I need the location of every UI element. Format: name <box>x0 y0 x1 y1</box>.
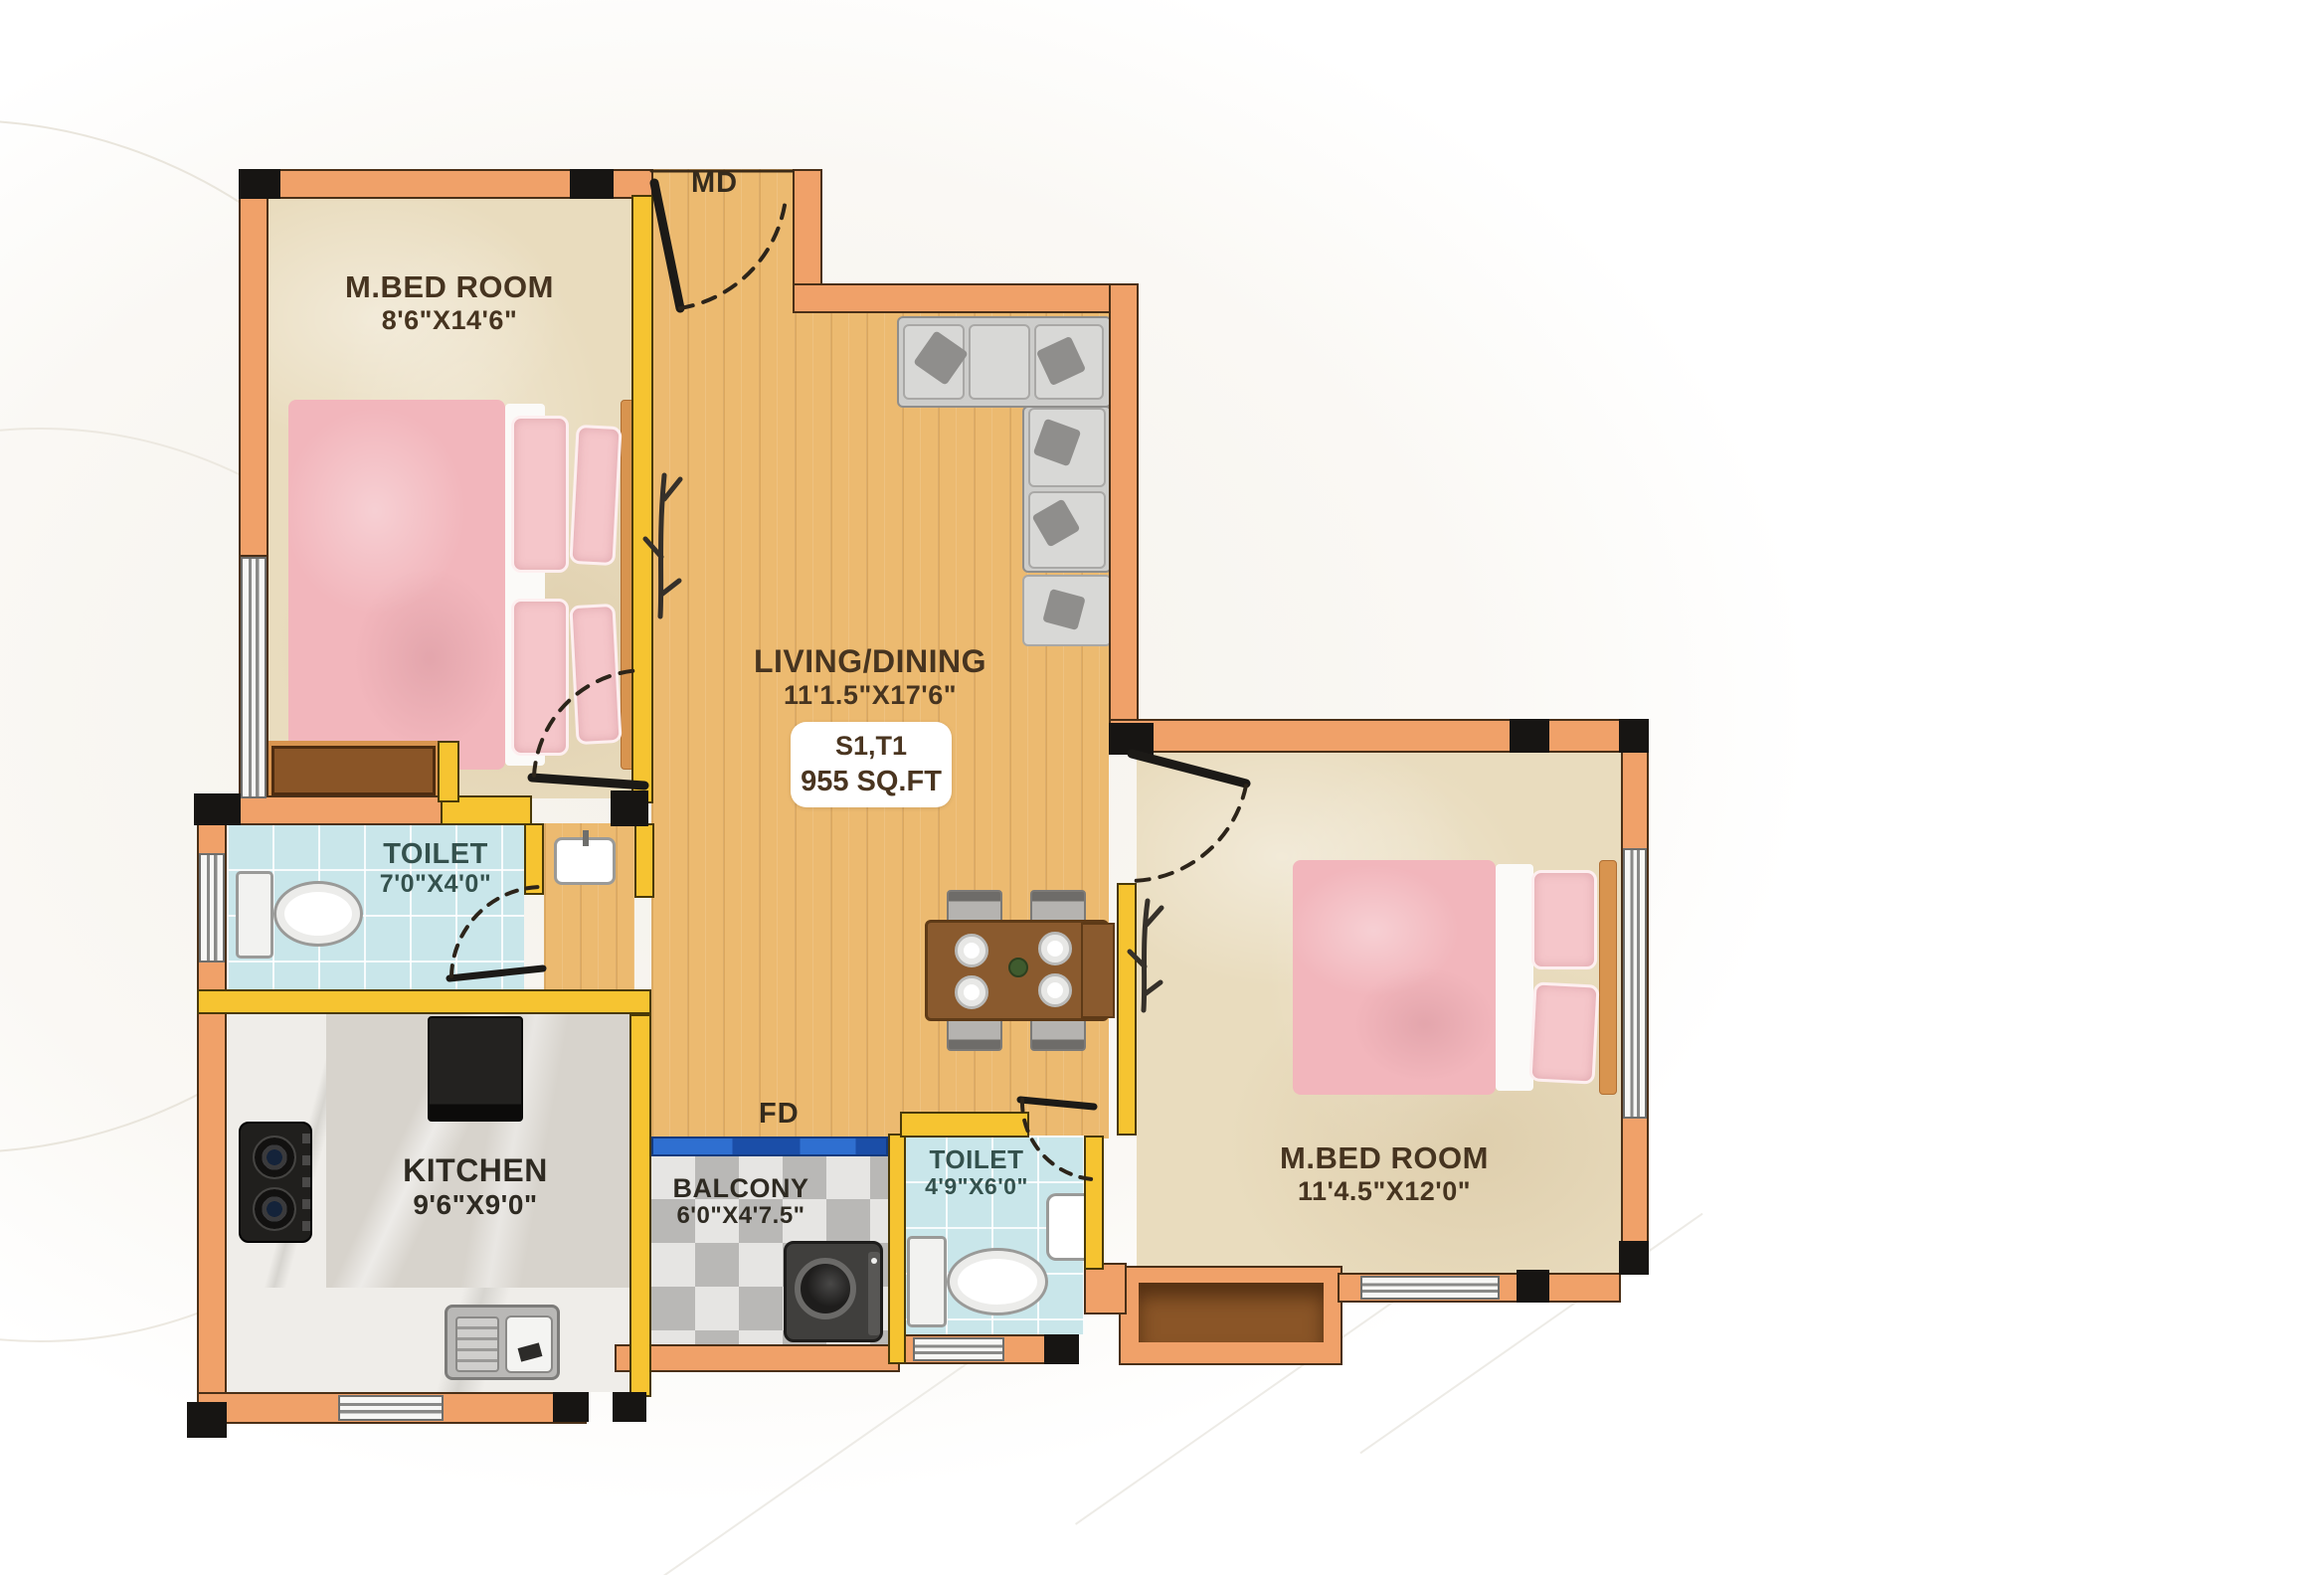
toilet2-door-leaf <box>1020 1100 1094 1107</box>
room-dims: 4'9"X6'0" <box>925 1174 1028 1200</box>
room-name: KITCHEN <box>403 1153 548 1189</box>
unit-code: S1,T1 <box>801 730 942 764</box>
room-dims: 11'4.5"X12'0" <box>1280 1176 1489 1206</box>
bedroom1-door-leaf <box>532 778 644 786</box>
room-name: M.BED ROOM <box>1280 1141 1489 1176</box>
kitchen-label: KITCHEN 9'6"X9'0" <box>403 1153 548 1220</box>
bedroom2-label: M.BED ROOM 11'4.5"X12'0" <box>1280 1141 1489 1206</box>
room-dims: 11'1.5"X17'6" <box>754 680 986 710</box>
toilet1-door-leaf <box>449 968 543 978</box>
living-label: LIVING/DINING 11'1.5"X17'6" <box>754 644 986 710</box>
room-name: BALCONY <box>673 1173 809 1203</box>
room-dims: 6'0"X4'7.5" <box>673 1203 809 1230</box>
room-dims: 8'6"X14'6" <box>345 305 554 335</box>
room-name: TOILET <box>380 838 491 870</box>
plant-entry <box>645 475 680 616</box>
room-dims: 9'6"X9'0" <box>403 1189 548 1220</box>
floor-plan-canvas: M.BED ROOM 8'6"X14'6" LIVING/DINING 11'1… <box>0 0 2324 1575</box>
toilet1-label: TOILET 7'0"X4'0" <box>380 838 491 898</box>
bedroom1-label: M.BED ROOM 8'6"X14'6" <box>345 270 554 335</box>
room-dims: 7'0"X4'0" <box>380 870 491 898</box>
main-door-label: MD <box>691 167 738 200</box>
toilet2-label: TOILET 4'9"X6'0" <box>925 1145 1028 1200</box>
balcony-label: BALCONY 6'0"X4'7.5" <box>673 1173 809 1230</box>
main-door-arc <box>680 199 786 308</box>
bedroom2-door-arc <box>1132 786 1246 881</box>
room-name: LIVING/DINING <box>754 644 986 680</box>
main-door-leaf <box>654 183 680 308</box>
room-name: TOILET <box>925 1145 1028 1174</box>
door-overlay <box>0 0 2324 1575</box>
french-door-label: FD <box>759 1098 800 1131</box>
toilet1-door-arc <box>451 887 539 976</box>
bedroom2-door-leaf <box>1132 754 1246 784</box>
unit-area: 955 SQ.FT <box>801 764 942 799</box>
toilet2-door-arc <box>1022 1100 1092 1179</box>
room-name: M.BED ROOM <box>345 270 554 305</box>
unit-area-badge: S1,T1 955 SQ.FT <box>791 722 952 807</box>
bedroom1-door-arc <box>534 670 641 776</box>
plant-bedroom2 <box>1130 901 1162 1010</box>
